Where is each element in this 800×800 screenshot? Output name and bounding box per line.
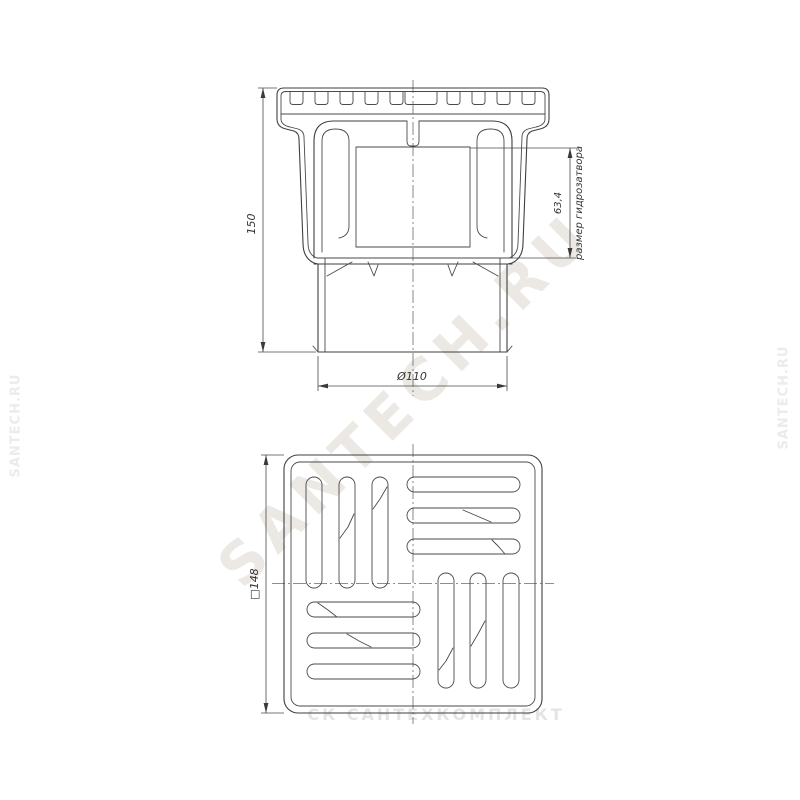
dim-label-grate-size: □148	[248, 568, 261, 599]
dim-label-seal-caption: размер гидрозатвора	[574, 146, 585, 261]
dim-height-150: 150	[245, 88, 316, 352]
outlet-pipe	[313, 258, 512, 352]
side-view: 150 Ø110 63,4 размер гидрозатвора	[245, 80, 585, 396]
dim-label-seal-value: 63,4	[553, 192, 564, 214]
dim-label-diameter: Ø110	[396, 370, 427, 383]
slots-top-right	[407, 477, 520, 554]
dim-diameter-110: Ø110	[318, 356, 507, 391]
dim-water-seal: 63,4 размер гидрозатвора	[470, 146, 585, 261]
grate-tabs	[290, 92, 535, 105]
top-view: □148	[248, 444, 554, 724]
drawing-canvas: SANTECH.RU SANTECH.RU SANTECH.RU СК САНТ…	[0, 0, 800, 800]
dim-label-height: 150	[245, 214, 258, 235]
technical-drawing-svg: 150 Ø110 63,4 размер гидрозатвора	[0, 0, 800, 800]
slots-top-left	[306, 477, 388, 588]
slots-bottom-left	[307, 602, 420, 679]
dim-grate-148: □148	[248, 455, 284, 713]
slots-bottom-right	[438, 573, 519, 688]
